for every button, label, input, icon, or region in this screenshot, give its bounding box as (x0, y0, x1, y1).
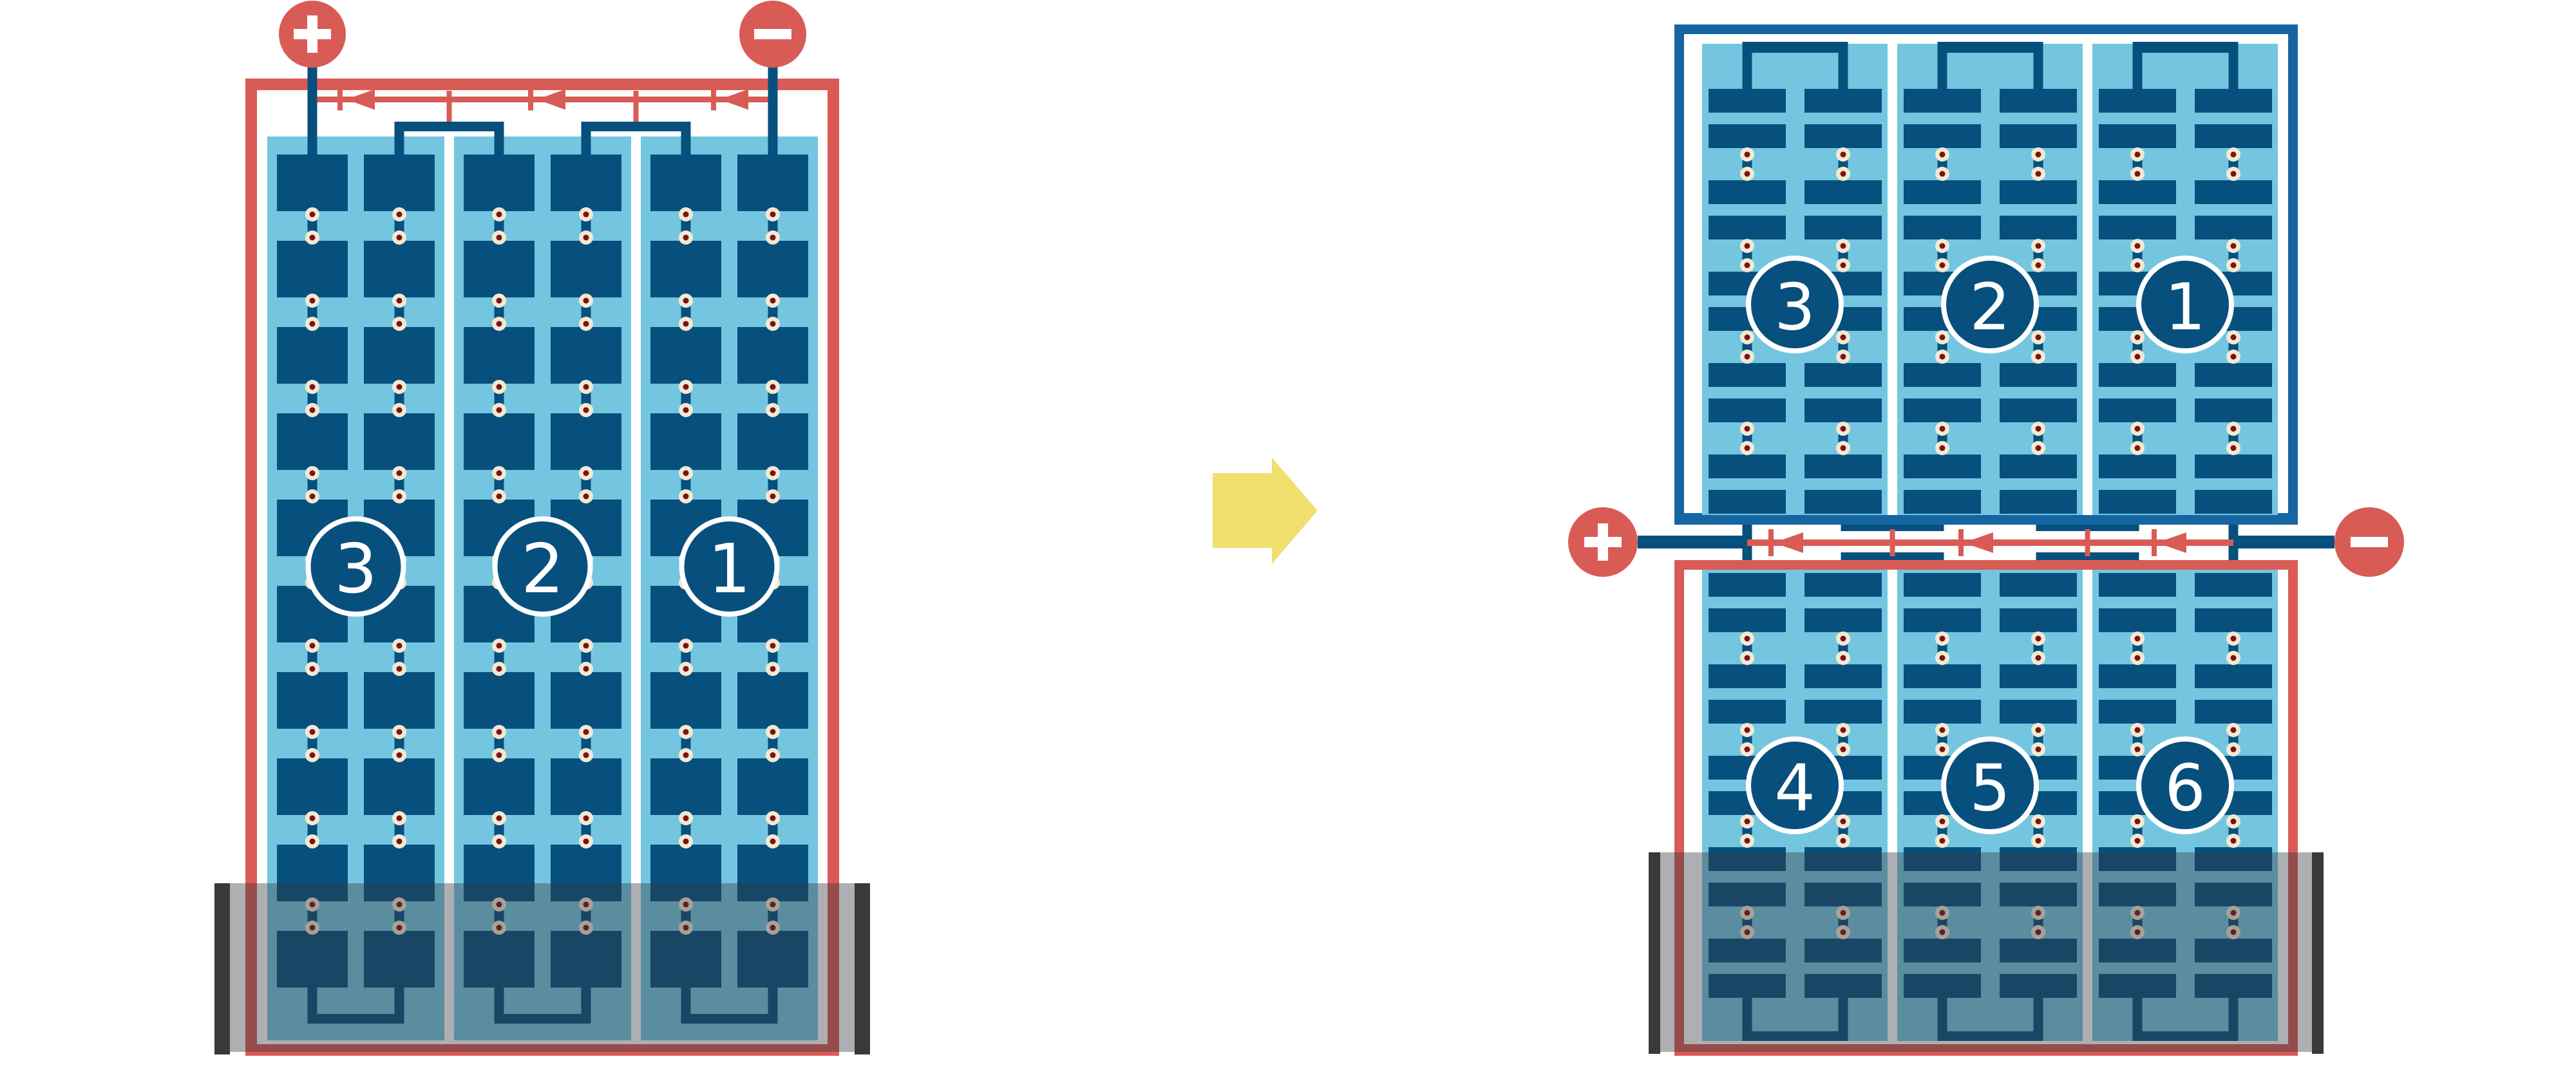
cell-number-badge: 3 (1748, 258, 1841, 351)
battery-plate (277, 155, 348, 211)
battery-plate (277, 327, 348, 384)
battery-plate (2195, 608, 2272, 632)
left-battery-diagram: 321 (214, 1, 870, 1056)
bridge-connector (395, 122, 504, 131)
top-unit: 321 (1674, 24, 2298, 525)
cell-number-badge: 4 (1748, 739, 1841, 832)
battery-plate (2099, 89, 2176, 113)
current-arrowhead-icon (1774, 532, 1803, 553)
battery-plate (1709, 454, 1786, 478)
battery-plate (2000, 608, 2077, 632)
battery-plate (364, 241, 435, 297)
current-arrowhead-icon (2157, 532, 2186, 553)
battery-plate (2099, 573, 2176, 597)
battery-plate (1804, 664, 1882, 688)
battery-plate (2000, 490, 2077, 514)
battery-plate (2099, 454, 2176, 478)
bridge-stub (447, 91, 452, 122)
battery-plate (1804, 398, 1882, 422)
current-arrowhead-icon (1964, 532, 1993, 553)
battery-plate (1804, 216, 1882, 239)
battery-plate (364, 155, 435, 211)
tick (1958, 529, 1964, 556)
cell-number-badge: 1 (2139, 258, 2231, 351)
tick (2085, 529, 2090, 556)
battery-plate (1804, 490, 1882, 514)
battery-plate (364, 327, 435, 384)
cell-number-badge: 2 (495, 519, 591, 614)
battery-plate (650, 327, 721, 384)
battery-plate (1904, 398, 1981, 422)
cell-number-label: 6 (2164, 751, 2206, 826)
battery-plate (1904, 89, 1981, 113)
battery-plate (1904, 664, 1981, 688)
positive-lead (1638, 536, 1747, 548)
cell-number-badge: 3 (308, 519, 404, 614)
battery-plate (1709, 700, 1786, 724)
cell-divider (2083, 44, 2092, 515)
top-connector (2133, 42, 2239, 53)
battery-plate (1804, 454, 1882, 478)
battery-plate (2099, 608, 2176, 632)
cell-number-badge: 1 (682, 519, 777, 614)
right-arrow-icon (1213, 458, 1318, 564)
battery-plate (1709, 490, 1786, 514)
battery-plate (1709, 363, 1786, 387)
battery-plate (464, 327, 535, 384)
tick (528, 89, 533, 111)
battery-plate (650, 155, 721, 211)
battery-plate (1904, 180, 1981, 204)
battery-plate (277, 672, 348, 729)
battery-plate (1904, 124, 1981, 148)
battery-plate (2000, 700, 2077, 724)
bridge-stub (634, 91, 639, 122)
case-edge-bar (855, 883, 870, 1054)
battery-plate (2195, 573, 2272, 597)
cell-divider (1888, 44, 1897, 515)
tick (337, 89, 343, 111)
battery-plate (2000, 398, 2077, 422)
top-connector (1743, 42, 1848, 53)
battery-plate (551, 758, 621, 815)
battery-plate (1904, 216, 1981, 239)
case-edge-bar (214, 883, 230, 1054)
cell-number-label: 3 (1774, 270, 1815, 345)
battery-plate (551, 672, 621, 729)
battery-plate (1804, 363, 1882, 387)
cell-number-label: 4 (1774, 751, 1815, 826)
battery-plate (650, 672, 721, 729)
bridge-connector (582, 122, 691, 131)
transform-arrow (1213, 458, 1318, 564)
battery-plate (2000, 216, 2077, 239)
battery-plate (737, 672, 808, 729)
battery-plate (2195, 89, 2272, 113)
positive-terminal (279, 1, 346, 68)
battery-plate (1904, 700, 1981, 724)
battery-plate (2099, 180, 2176, 204)
battery-plate (2195, 124, 2272, 148)
battery-plate (551, 413, 621, 470)
negative-post (768, 61, 778, 156)
case-edge-bar (2312, 852, 2324, 1054)
battery-plate (364, 413, 435, 470)
battery-diagram-page: 321321456 (0, 0, 2576, 1068)
battery-plate (2099, 490, 2176, 514)
cell-number-label: 2 (1969, 270, 2011, 345)
battery-plate (2000, 180, 2077, 204)
battery-plate (277, 413, 348, 470)
battery-plate (2195, 363, 2272, 387)
battery-plate (2000, 573, 2077, 597)
cell-number-badge: 5 (1944, 739, 2036, 832)
battery-plate (2000, 89, 2077, 113)
negative-terminal (2334, 507, 2404, 577)
bottom-unit: 456 (1649, 560, 2324, 1056)
battery-plate (1804, 700, 1882, 724)
battery-plate (1709, 608, 1786, 632)
tick (711, 89, 716, 111)
battery-plate (1804, 608, 1882, 632)
battery-plate (464, 758, 535, 815)
battery-plate (464, 672, 535, 729)
battery-plate (277, 758, 348, 815)
battery-plate (364, 672, 435, 729)
battery-plate (1904, 490, 1981, 514)
battery-plate (1904, 573, 1981, 597)
battery-plate (1904, 454, 1981, 478)
battery-plate (2195, 180, 2272, 204)
battery-plate (737, 155, 808, 211)
battery-plate (551, 241, 621, 297)
case-overlay (230, 883, 855, 1052)
battery-plate (2195, 454, 2272, 478)
case-overlay (1649, 852, 2324, 1052)
battery-plate (1804, 573, 1882, 597)
battery-plate (2195, 490, 2272, 514)
cell-number-label: 3 (334, 530, 377, 608)
tick (1890, 529, 1895, 556)
battery-plate (737, 413, 808, 470)
cell-number-badge: 2 (1944, 258, 2036, 351)
battery-plate (2195, 398, 2272, 422)
tick (1768, 529, 1774, 556)
battery-plate (2099, 664, 2176, 688)
battery-plate (2000, 664, 2077, 688)
battery-plate (2195, 700, 2272, 724)
battery-plate (2099, 363, 2176, 387)
battery-plate (551, 155, 621, 211)
case-edge-bar (1649, 852, 1660, 1054)
cell-number-label: 5 (1969, 751, 2011, 826)
battery-plate (650, 413, 721, 470)
battery-plate (1904, 608, 1981, 632)
battery-plate (2099, 398, 2176, 422)
battery-plate (1709, 124, 1786, 148)
battery-plate (1904, 363, 1981, 387)
positive-post (308, 61, 317, 156)
battery-plate (1804, 180, 1882, 204)
top-connector (1938, 42, 2043, 53)
battery-plate (1709, 216, 1786, 239)
cell-number-label: 2 (521, 530, 564, 608)
battery-plate (464, 413, 535, 470)
battery-plate (277, 241, 348, 297)
battery-plate (650, 758, 721, 815)
battery-plate (551, 327, 621, 384)
battery-plate (1709, 664, 1786, 688)
battery-plate (1709, 398, 1786, 422)
battery-plate (1709, 89, 1786, 113)
tick (2152, 529, 2157, 556)
battery-plate (2195, 664, 2272, 688)
negative-terminal (739, 1, 806, 68)
battery-plate (737, 241, 808, 297)
battery-plate (2000, 363, 2077, 387)
positive-terminal (1568, 507, 1638, 577)
cell-number-label: 1 (2164, 270, 2206, 345)
battery-reconfiguration-diagram: 321321456 (0, 0, 2576, 1068)
battery-plate (1804, 89, 1882, 113)
battery-plate (2099, 124, 2176, 148)
battery-plate (2000, 454, 2077, 478)
battery-plate (737, 758, 808, 815)
battery-plate (650, 241, 721, 297)
battery-plate (1804, 124, 1882, 148)
battery-plate (2099, 216, 2176, 239)
negative-lead (2233, 536, 2334, 548)
right-battery-diagram: 321456 (1568, 24, 2404, 1056)
battery-plate (2099, 700, 2176, 724)
battery-plate (737, 327, 808, 384)
battery-plate (2000, 124, 2077, 148)
cell-number-badge: 6 (2139, 739, 2231, 832)
battery-plate (364, 758, 435, 815)
cell-number-label: 1 (708, 530, 751, 608)
battery-plate (464, 155, 535, 211)
battery-plate (2195, 216, 2272, 239)
battery-plate (1709, 573, 1786, 597)
battery-plate (464, 241, 535, 297)
battery-plate (1709, 180, 1786, 204)
